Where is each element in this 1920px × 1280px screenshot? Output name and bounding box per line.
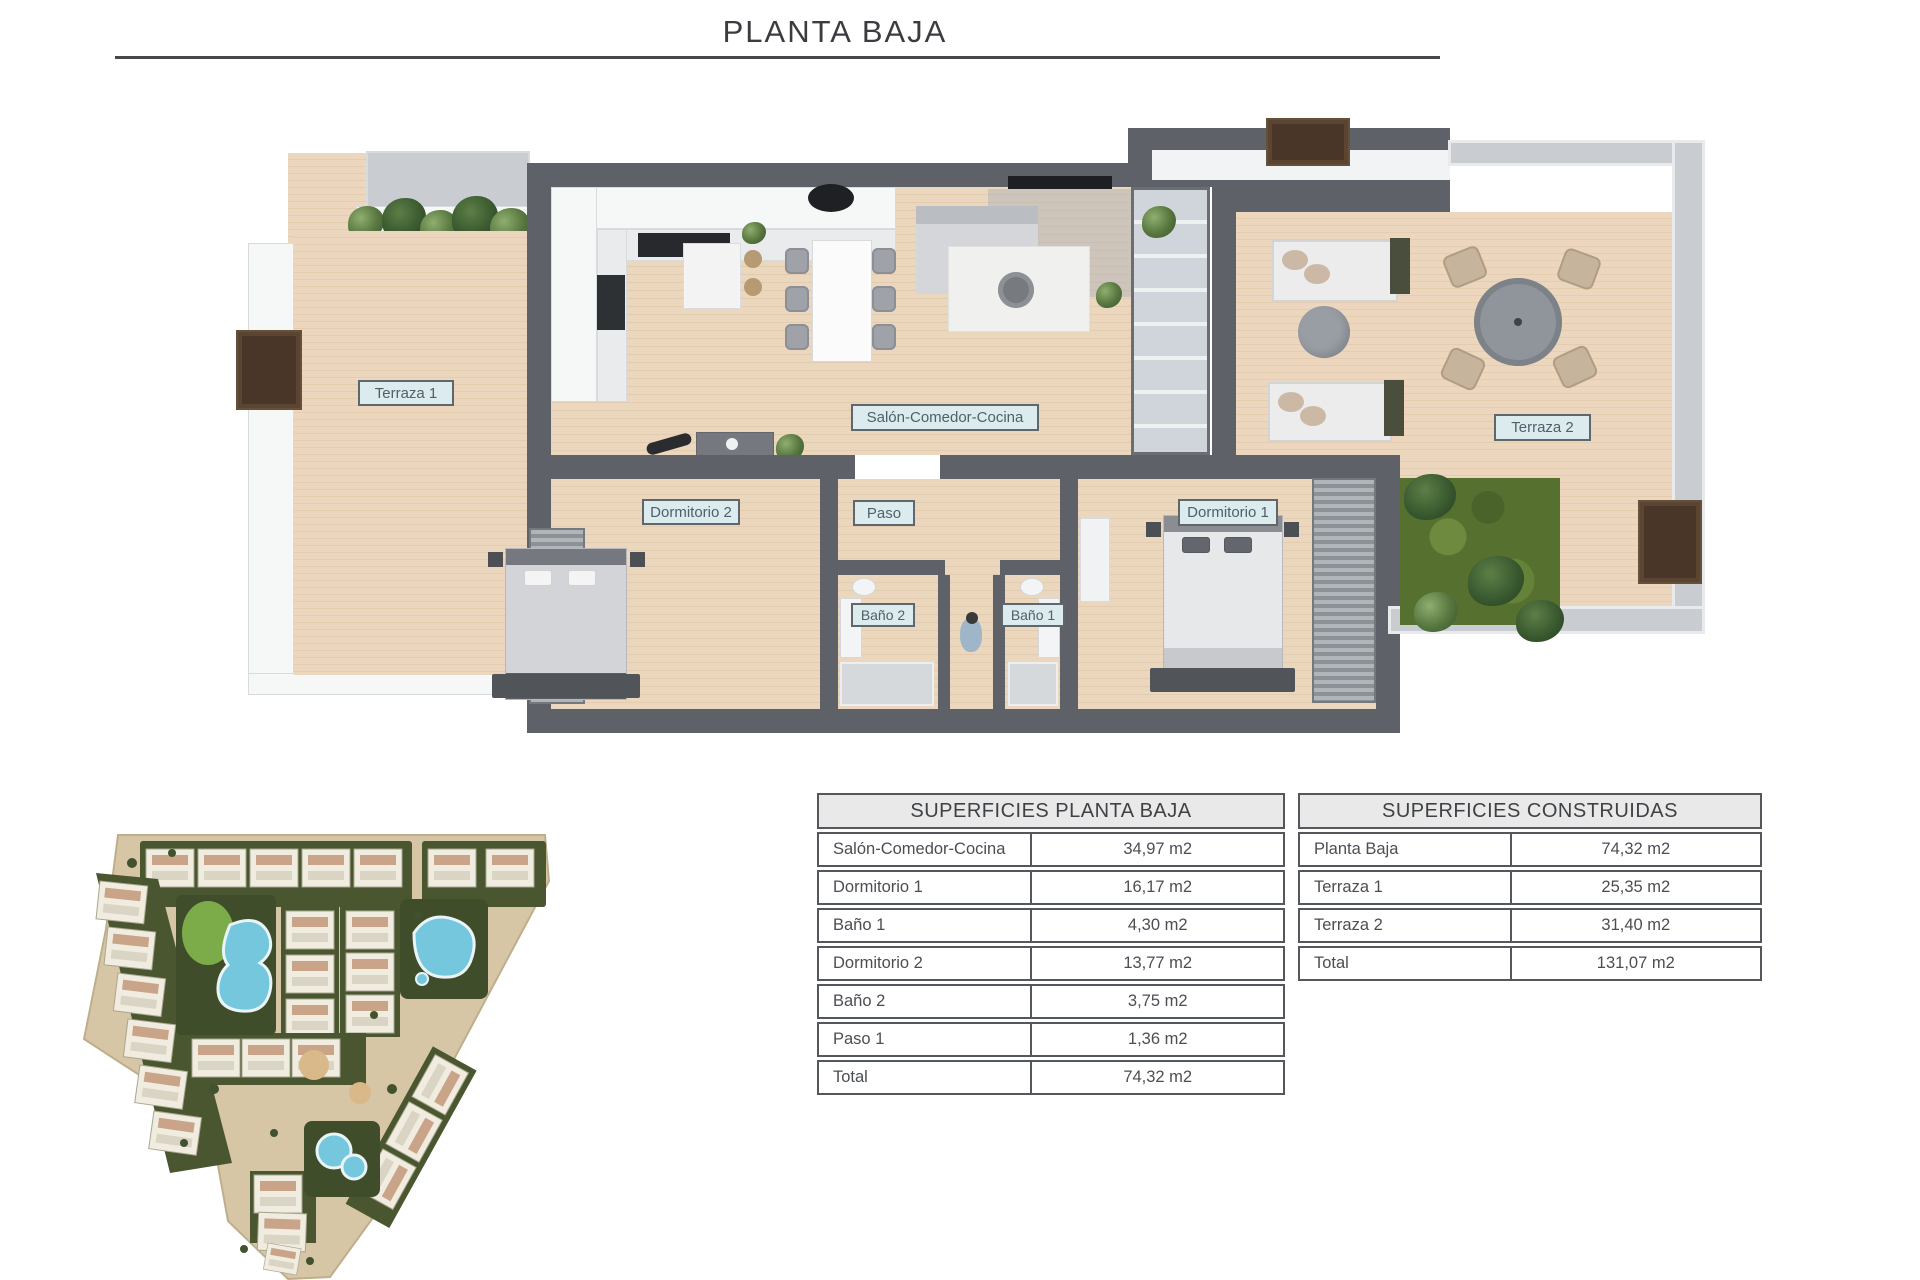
row-label: Total	[819, 1062, 1032, 1093]
table-superficies-construidas: SUPERFICIES CONSTRUIDAS Planta Baja74,32…	[1298, 793, 1762, 981]
room-label-paso: Paso	[853, 500, 915, 526]
table-row: Paso 11,36 m2	[817, 1022, 1285, 1057]
table-title: SUPERFICIES CONSTRUIDAS	[1298, 793, 1762, 829]
dorm1-wardrobe	[1080, 518, 1110, 602]
bath-wall-v-right	[993, 575, 1005, 709]
table-superficies-planta-baja: SUPERFICIES PLANTA BAJA Salón-Comedor-Co…	[817, 793, 1285, 1095]
person-head	[966, 612, 978, 624]
row-label: Planta Baja	[1300, 834, 1512, 865]
dining-chair	[872, 286, 896, 312]
table-row: Salón-Comedor-Cocina34,97 m2	[817, 832, 1285, 867]
row-value: 25,35 m2	[1512, 872, 1760, 903]
wall-divider-right	[940, 455, 1400, 479]
lounge-sofa	[1268, 382, 1392, 442]
coffee-table	[998, 272, 1034, 308]
dorm1-bed	[1163, 515, 1283, 675]
page: PLANTA BAJA Terraza 1	[0, 0, 1920, 1280]
terraza2-wall-left	[1212, 180, 1236, 455]
row-value: 1,36 m2	[1032, 1024, 1283, 1055]
fridge	[597, 275, 625, 330]
row-value: 13,77 m2	[1032, 948, 1283, 979]
site-plan	[62, 833, 554, 1280]
terraza2-window-right	[1638, 500, 1702, 584]
row-value: 4,30 m2	[1032, 910, 1283, 941]
table-row: Baño 23,75 m2	[817, 984, 1285, 1019]
bath1-shower	[1008, 662, 1058, 706]
bath-wall-h-right	[1000, 560, 1060, 575]
lounge-sofa	[1272, 240, 1398, 302]
row-label: Baño 2	[819, 986, 1032, 1017]
table-row: Total74,32 m2	[817, 1060, 1285, 1095]
sink	[726, 438, 738, 450]
bath1-toilet	[1020, 578, 1044, 596]
ceiling-lamp	[808, 184, 854, 212]
nightstand	[630, 552, 645, 567]
bath-wall-v-left	[938, 575, 950, 709]
row-value: 74,32 m2	[1032, 1062, 1283, 1093]
room-label-salon: Salón-Comedor-Cocina	[851, 404, 1039, 431]
row-label: Paso 1	[819, 1024, 1032, 1055]
row-value: 16,17 m2	[1032, 872, 1283, 903]
kitchen-island	[683, 243, 741, 309]
room-label-dorm2: Dormitorio 2	[642, 499, 740, 525]
row-value: 3,75 m2	[1032, 986, 1283, 1017]
table-row: Dormitorio 116,17 m2	[817, 870, 1285, 905]
terraza1-window-box	[236, 330, 302, 410]
dorm2-rug	[492, 674, 640, 698]
dining-chair	[872, 324, 896, 350]
dining-table	[812, 240, 872, 362]
room-label-terraza2: Terraza 2	[1494, 414, 1591, 441]
room-label-bath1: Baño 1	[1001, 603, 1065, 627]
kitchen-cabinet-left	[551, 187, 597, 402]
room-label-bath2: Baño 2	[851, 603, 915, 627]
row-value: 131,07 m2	[1512, 948, 1760, 979]
room-label-dorm1: Dormitorio 1	[1178, 499, 1278, 526]
terraza1-wall-left	[248, 243, 294, 695]
dining-chair	[785, 324, 809, 350]
table-row: Dormitorio 213,77 m2	[817, 946, 1285, 981]
terraza2-wall-step2	[1212, 180, 1450, 212]
dining-chair	[785, 248, 809, 274]
wall-bottom	[527, 709, 1400, 733]
nightstand	[1146, 522, 1161, 537]
table-row: Total131,07 m2	[1298, 946, 1762, 981]
paso-wall-right	[1060, 479, 1078, 709]
bath-wall-h-left	[838, 560, 945, 575]
bath2-shower	[840, 662, 934, 706]
sofa-back	[916, 206, 1038, 224]
table-row: Planta Baja74,32 m2	[1298, 832, 1762, 867]
wall-right-bedwing	[1376, 455, 1400, 733]
round-table-center	[1514, 318, 1522, 326]
row-label: Dormitorio 1	[819, 872, 1032, 903]
row-label: Terraza 2	[1300, 910, 1512, 941]
terraza2-wall-top	[1448, 140, 1705, 166]
stool	[744, 250, 762, 268]
row-label: Salón-Comedor-Cocina	[819, 834, 1032, 865]
paso-wall-left	[820, 479, 838, 709]
table-row: Terraza 231,40 m2	[1298, 908, 1762, 943]
room-label-terraza1: Terraza 1	[358, 380, 454, 406]
dorm1-rug	[1150, 668, 1295, 692]
tv	[1008, 176, 1112, 189]
dining-chair	[785, 286, 809, 312]
row-value: 74,32 m2	[1512, 834, 1760, 865]
nightstand	[488, 552, 503, 567]
table-row: Terraza 125,35 m2	[1298, 870, 1762, 905]
terraza1-floor	[294, 231, 534, 675]
table-row: Baño 14,30 m2	[817, 908, 1285, 943]
bath2-toilet	[852, 578, 876, 596]
row-label: Baño 1	[819, 910, 1032, 941]
table-body: Salón-Comedor-Cocina34,97 m2Dormitorio 1…	[817, 832, 1285, 1095]
stool	[744, 278, 762, 296]
floor-plan: Terraza 1	[0, 0, 1920, 760]
row-label: Dormitorio 2	[819, 948, 1032, 979]
table-body: Planta Baja74,32 m2Terraza 125,35 m2Terr…	[1298, 832, 1762, 981]
row-label: Total	[1300, 948, 1512, 979]
row-value: 34,97 m2	[1032, 834, 1283, 865]
row-value: 31,40 m2	[1512, 910, 1760, 941]
table-title: SUPERFICIES PLANTA BAJA	[817, 793, 1285, 829]
ottoman	[1298, 306, 1350, 358]
wall-divider-left	[527, 455, 855, 479]
terraza2-window-top	[1266, 118, 1350, 166]
dining-chair	[872, 248, 896, 274]
palm-icon	[1516, 600, 1564, 642]
dorm1-window	[1312, 478, 1376, 703]
nightstand	[1284, 522, 1299, 537]
row-label: Terraza 1	[1300, 872, 1512, 903]
